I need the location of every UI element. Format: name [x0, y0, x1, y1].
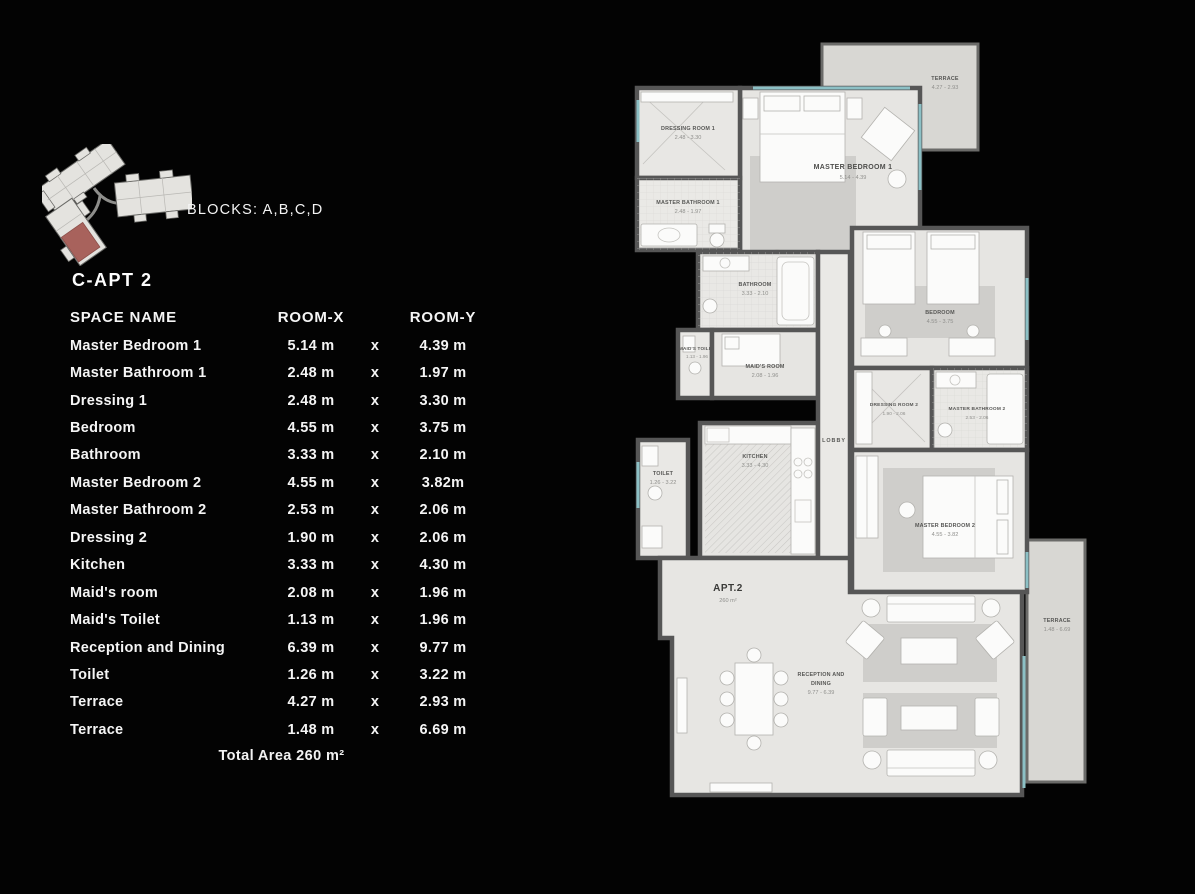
table-row: Terrace1.48 mx6.69 m — [70, 716, 493, 743]
room-master-bathroom-2: MASTER BATHROOM 2 2.53 - 2.06 — [932, 368, 1027, 450]
space-name: Dressing 1 — [70, 393, 265, 409]
table-row: Kitchen3.33 mx4.30 m — [70, 552, 493, 579]
room-y: 1.97 m — [393, 365, 493, 381]
space-name: Bedroom — [70, 420, 265, 436]
total-area: Total Area 260 m² — [70, 748, 493, 764]
room-y: 4.39 m — [393, 338, 493, 354]
space-name: Bathroom — [70, 447, 265, 463]
space-name: Maid's Toilet — [70, 612, 265, 628]
table-row: Dressing 12.48 mx3.30 m — [70, 387, 493, 414]
room-x: 1.26 m — [265, 667, 357, 683]
room-dims: 9.77 - 6.39 — [808, 690, 835, 696]
site-block-b — [114, 168, 192, 224]
room-y: 2.06 m — [393, 502, 493, 518]
table-row: Master Bathroom 22.53 mx2.06 m — [70, 497, 493, 524]
room-y: 2.10 m — [393, 447, 493, 463]
table-row: Maid's room2.08 mx1.96 m — [70, 579, 493, 606]
floor-plan: TERRACE 4.27 - 2.93 TERRACE 1.48 - 6.69 … — [625, 38, 1095, 803]
room-dressing-2: DRESSING ROOM 2 1.90 - 2.06 — [852, 368, 932, 450]
space-name: Master Bathroom 2 — [70, 502, 265, 518]
room-toilet: TOILET 1.26 - 3.22 — [638, 440, 688, 558]
dim-separator: x — [357, 557, 393, 573]
room-master-bathroom-1: MASTER BATHROOM 1 2.48 - 1.97 — [637, 178, 740, 250]
room-label: TOILET — [653, 471, 674, 477]
space-name: Toilet — [70, 667, 265, 683]
space-name: Dressing 2 — [70, 530, 265, 546]
space-name: Maid's room — [70, 585, 265, 601]
room-kitchen: KITCHEN 3.33 - 4.30 — [700, 423, 818, 558]
dim-separator: x — [357, 667, 393, 683]
apartment-title: C-APT 2 — [72, 270, 153, 291]
space-name: Kitchen — [70, 557, 265, 573]
room-label: MAID'S ROOM — [745, 364, 784, 370]
dim-separator: x — [357, 338, 393, 354]
room-y: 2.06 m — [393, 530, 493, 546]
room-x: 5.14 m — [265, 338, 357, 354]
space-name: Terrace — [70, 694, 265, 710]
dim-separator: x — [357, 475, 393, 491]
table-row: Master Bedroom 15.14 mx4.39 m — [70, 332, 493, 359]
apartment-area: 260 m² — [719, 598, 737, 604]
room-x: 3.33 m — [265, 447, 357, 463]
dim-separator: x — [357, 694, 393, 710]
header-room-y: ROOM-Y — [393, 309, 493, 326]
header-room-x: ROOM-X — [265, 309, 357, 326]
room-label: KITCHEN — [742, 454, 767, 460]
room-label: BEDROOM — [925, 310, 955, 316]
site-plan — [42, 144, 192, 266]
room-dressing-1: DRESSING ROOM 1 2.48 - 3.30 — [637, 88, 740, 178]
room-y: 9.77 m — [393, 640, 493, 656]
space-name: Master Bedroom 1 — [70, 338, 265, 354]
room-x: 1.13 m — [265, 612, 357, 628]
room-dims: 4.55 - 3.75 — [927, 319, 954, 325]
room-lobby: LOBBY — [818, 252, 850, 589]
room-dims: 5.14 - 4.39 — [840, 175, 867, 181]
table-row: Bathroom3.33 mx2.10 m — [70, 442, 493, 469]
table-row: Master Bathroom 12.48 mx1.97 m — [70, 359, 493, 386]
room-x: 2.48 m — [265, 393, 357, 409]
room-label: TERRACE — [931, 76, 959, 82]
room-label: MASTER BATHROOM 1 — [656, 200, 720, 206]
dimension-table: SPACE NAME ROOM-X ROOM-Y Master Bedroom … — [70, 302, 493, 764]
space-name: Reception and Dining — [70, 640, 265, 656]
room-dims: 1.26 - 3.22 — [650, 480, 677, 486]
room-dims: 1.13 - 1.96 — [686, 354, 708, 359]
table-row: Reception and Dining6.39 mx9.77 m — [70, 634, 493, 661]
room-y: 2.93 m — [393, 694, 493, 710]
room-y: 3.82m — [393, 475, 493, 491]
room-label: MAID'S TOILET — [679, 346, 715, 351]
room-y: 3.75 m — [393, 420, 493, 436]
dim-separator: x — [357, 722, 393, 738]
table-row: Maid's Toilet1.13 mx1.96 m — [70, 606, 493, 633]
room-label: MASTER BEDROOM 2 — [915, 523, 975, 529]
dim-separator: x — [357, 420, 393, 436]
room-dims: 4.27 - 2.93 — [932, 85, 959, 91]
room-dims: 1.48 - 6.69 — [1044, 627, 1071, 633]
room-label: BATHROOM — [739, 282, 772, 288]
room-y: 3.22 m — [393, 667, 493, 683]
table-row: Bedroom4.55 mx3.75 m — [70, 414, 493, 441]
room-terrace-right: TERRACE 1.48 - 6.69 — [1027, 540, 1085, 782]
page: BLOCKS: A,B,C,D C-APT 2 SPACE NAME ROOM-… — [0, 0, 1195, 894]
table-row: Toilet1.26 mx3.22 m — [70, 661, 493, 688]
room-x: 4.55 m — [265, 420, 357, 436]
room-maids-toilet: MAID'S TOILET 1.13 - 1.96 — [678, 330, 715, 398]
dim-separator: x — [357, 530, 393, 546]
dim-separator: x — [357, 502, 393, 518]
table-row: Terrace4.27 mx2.93 m — [70, 689, 493, 716]
room-maids-room: MAID'S ROOM 2.08 - 1.96 — [712, 330, 818, 398]
dim-separator: x — [357, 447, 393, 463]
room-dims: 4.55 - 3.82 — [932, 532, 959, 538]
blocks-label: BLOCKS: A,B,C,D — [187, 202, 323, 218]
dim-separator: x — [357, 365, 393, 381]
room-label: MASTER BATHROOM 2 — [949, 406, 1006, 412]
room-master-bedroom-2: MASTER BEDROOM 2 4.55 - 3.82 — [852, 450, 1027, 592]
room-x: 2.53 m — [265, 502, 357, 518]
room-x: 4.27 m — [265, 694, 357, 710]
header-space-name: SPACE NAME — [70, 309, 265, 326]
room-x: 1.90 m — [265, 530, 357, 546]
space-name: Master Bathroom 1 — [70, 365, 265, 381]
room-label: LOBBY — [822, 438, 846, 444]
table-row: Master Bedroom 24.55 mx3.82m — [70, 469, 493, 496]
room-x: 3.33 m — [265, 557, 357, 573]
room-label-line1: RECEPTION AND — [797, 672, 844, 678]
room-label: TERRACE — [1043, 618, 1071, 624]
room-x: 4.55 m — [265, 475, 357, 491]
room-y: 6.69 m — [393, 722, 493, 738]
dim-separator: x — [357, 585, 393, 601]
room-dims: 3.33 - 4.30 — [742, 463, 769, 469]
room-dims: 3.33 - 2.10 — [742, 291, 769, 297]
dim-separator: x — [357, 393, 393, 409]
room-label: DRESSING ROOM 1 — [661, 126, 715, 132]
room-y: 1.96 m — [393, 585, 493, 601]
space-name: Master Bedroom 2 — [70, 475, 265, 491]
table-header: SPACE NAME ROOM-X ROOM-Y — [70, 302, 493, 332]
room-x: 2.48 m — [265, 365, 357, 381]
space-name: Terrace — [70, 722, 265, 738]
table-row: Dressing 21.90 mx2.06 m — [70, 524, 493, 551]
room-dims: 1.90 - 2.06 — [883, 411, 906, 417]
room-x: 1.48 m — [265, 722, 357, 738]
room-y: 1.96 m — [393, 612, 493, 628]
room-bathroom: BATHROOM 3.33 - 2.10 — [698, 252, 818, 330]
room-dims: 2.48 - 1.97 — [675, 209, 702, 215]
room-label: DRESSING ROOM 2 — [870, 402, 918, 408]
dim-separator: x — [357, 640, 393, 656]
room-label: MASTER BEDROOM 1 — [814, 164, 893, 171]
room-y: 3.30 m — [393, 393, 493, 409]
room-dims: 2.48 - 3.30 — [675, 135, 702, 141]
apartment-number: APT.2 — [713, 583, 743, 594]
room-label-line2: DINING — [811, 681, 831, 687]
room-dims: 2.08 - 1.96 — [752, 373, 779, 379]
room-dims: 2.53 - 2.06 — [966, 415, 989, 421]
room-x: 2.08 m — [265, 585, 357, 601]
room-bedroom: BEDROOM 4.55 - 3.75 — [852, 228, 1027, 368]
dim-separator: x — [357, 612, 393, 628]
room-x: 6.39 m — [265, 640, 357, 656]
room-y: 4.30 m — [393, 557, 493, 573]
